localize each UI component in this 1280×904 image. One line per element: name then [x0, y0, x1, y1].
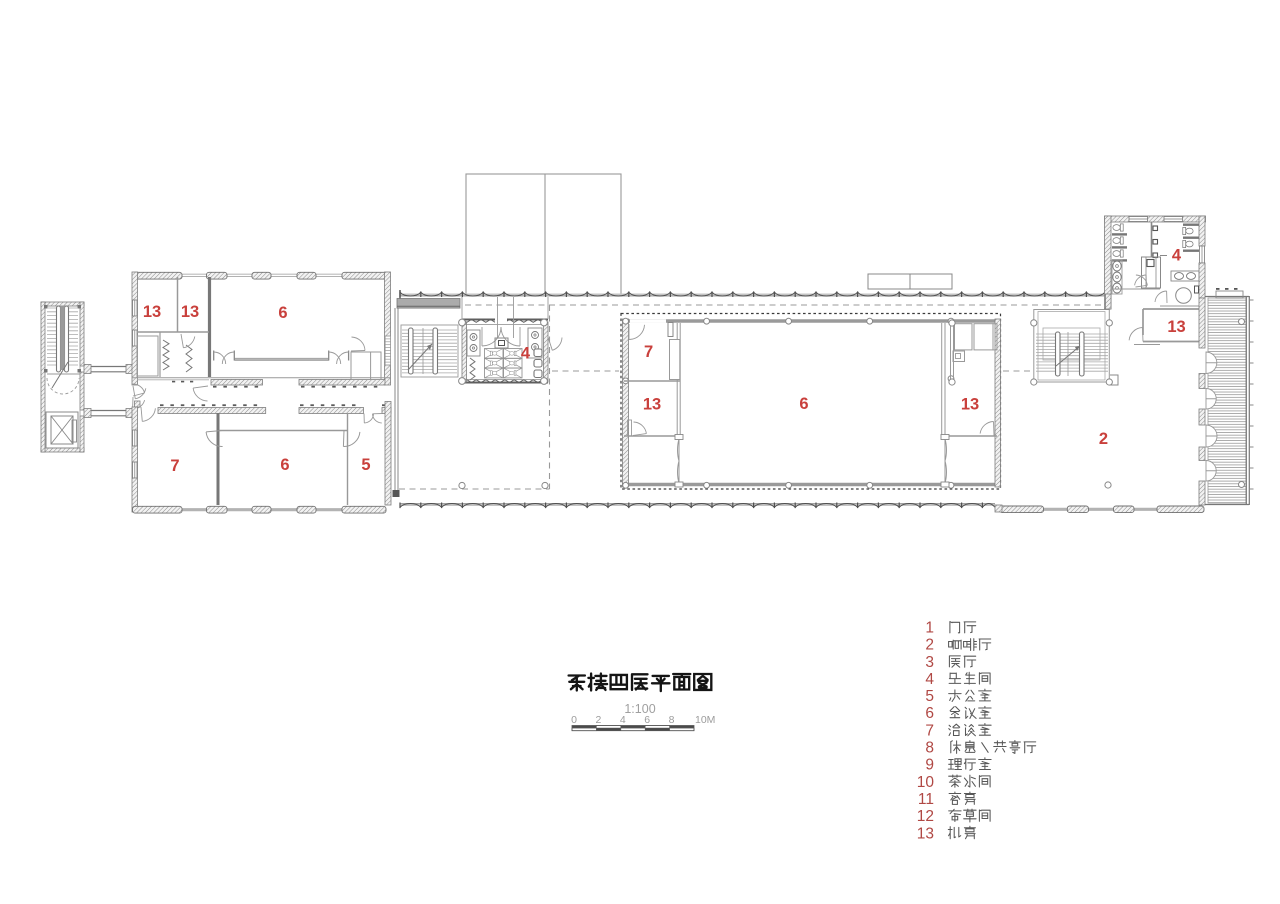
svg-text:8: 8: [669, 714, 675, 726]
svg-text:4: 4: [1172, 246, 1182, 264]
svg-text:6: 6: [799, 395, 808, 413]
svg-text:13: 13: [143, 303, 161, 321]
svg-text:2: 2: [1099, 430, 1108, 448]
svg-text:9: 9: [925, 757, 934, 774]
svg-text:5: 5: [925, 688, 934, 705]
svg-text:7: 7: [925, 722, 934, 739]
svg-text:13: 13: [181, 303, 199, 321]
svg-text:5: 5: [361, 456, 370, 474]
svg-text:6: 6: [278, 304, 287, 322]
svg-text:2: 2: [595, 714, 601, 726]
svg-text:13: 13: [643, 395, 661, 413]
svg-text:6: 6: [925, 705, 934, 722]
svg-text:13: 13: [917, 825, 934, 842]
svg-text:3: 3: [925, 654, 934, 671]
svg-text:1:100: 1:100: [624, 702, 655, 716]
svg-text:7: 7: [170, 457, 179, 475]
svg-text:13: 13: [1167, 318, 1185, 336]
svg-text:7: 7: [644, 343, 653, 361]
svg-text:6: 6: [644, 714, 650, 726]
svg-text:2: 2: [925, 637, 934, 654]
svg-text:6: 6: [280, 456, 289, 474]
svg-text:0: 0: [571, 714, 577, 726]
svg-text:13: 13: [961, 395, 979, 413]
svg-text:8: 8: [925, 740, 934, 757]
svg-text:4: 4: [620, 714, 626, 726]
svg-text:10M: 10M: [695, 714, 715, 726]
svg-text:11: 11: [918, 791, 934, 808]
svg-text:1: 1: [925, 620, 934, 637]
svg-text:10: 10: [917, 774, 935, 791]
svg-text:12: 12: [917, 808, 934, 825]
svg-text:4: 4: [521, 344, 531, 362]
svg-text:4: 4: [925, 671, 934, 688]
